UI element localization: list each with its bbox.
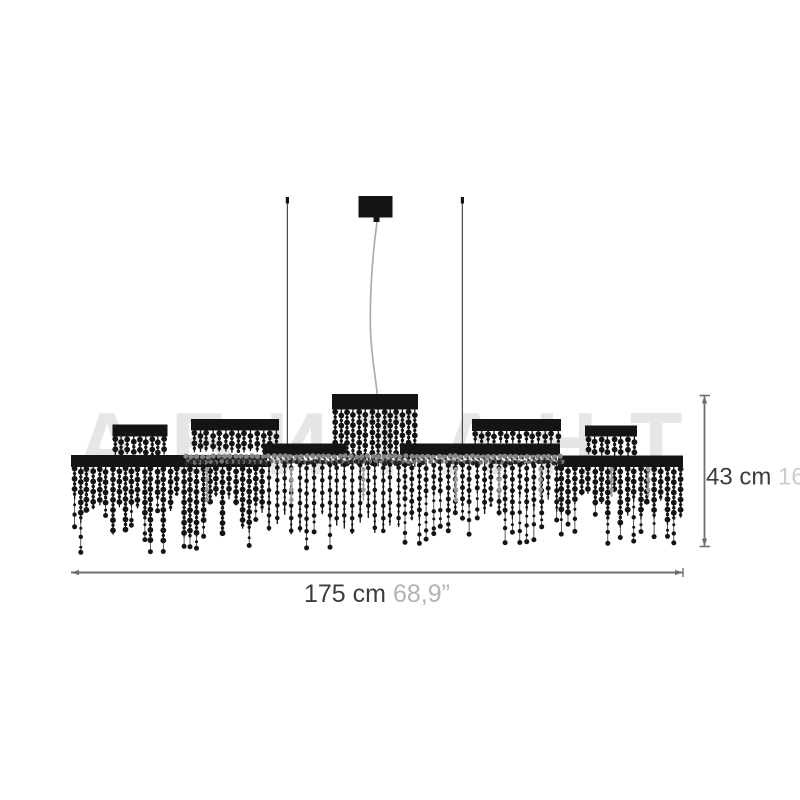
svg-text:175 cm 68,9”: 175 cm 68,9” — [304, 580, 450, 608]
svg-text:43 cm 16,9”: 43 cm 16,9” — [706, 464, 800, 491]
